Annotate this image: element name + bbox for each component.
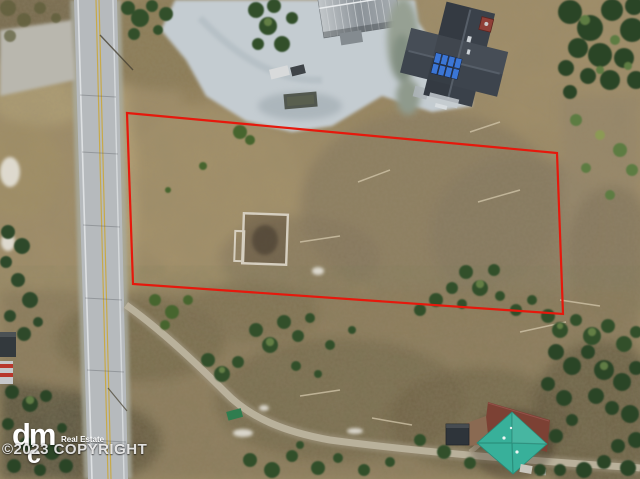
aerial-photo: dm c Real Estate ©2023 COPYRIGHT: [0, 0, 640, 479]
garden-bed: [283, 92, 317, 110]
copyright-watermark: ©2023 COPYRIGHT: [2, 441, 147, 458]
aerial-photo-canvas: [0, 0, 640, 479]
